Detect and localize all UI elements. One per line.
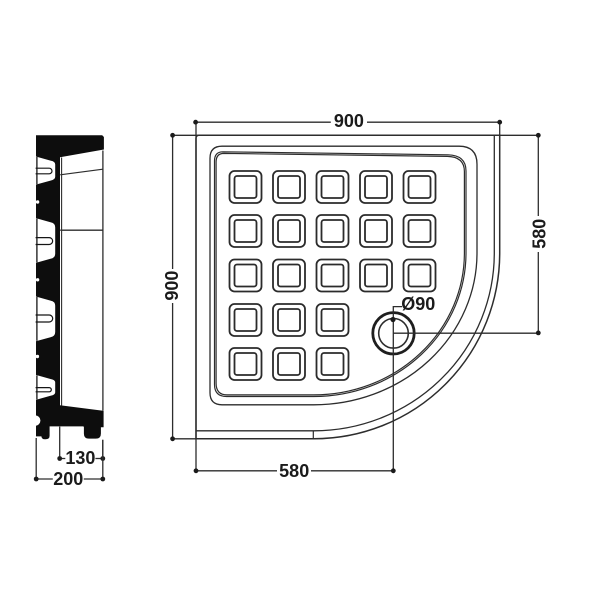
svg-text:Ø90: Ø90 <box>401 294 435 314</box>
svg-text:900: 900 <box>334 111 364 131</box>
svg-text:580: 580 <box>530 219 550 249</box>
svg-text:200: 200 <box>53 469 83 489</box>
svg-text:580: 580 <box>279 461 309 481</box>
svg-text:130: 130 <box>65 448 95 468</box>
svg-text:900: 900 <box>162 271 182 301</box>
